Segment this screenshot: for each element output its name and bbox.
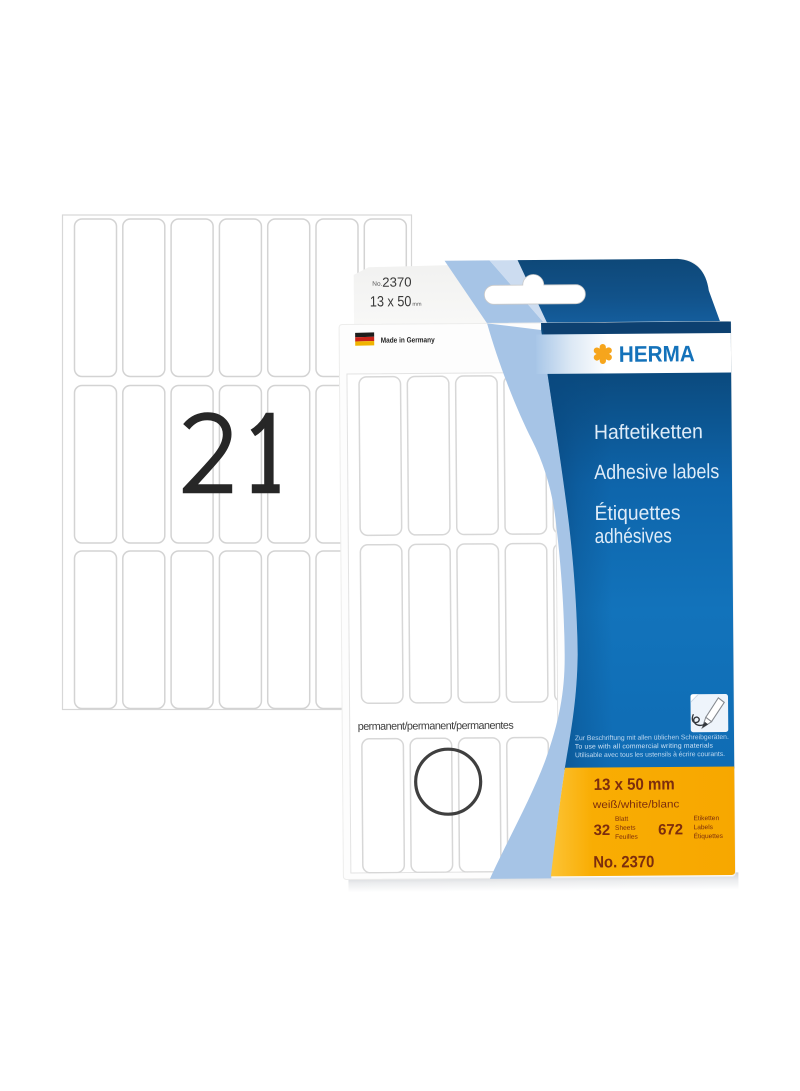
svg-text:Etiketten: Etiketten [693, 815, 719, 822]
svg-text:Labels: Labels [694, 824, 714, 831]
svg-text:Adhesive labels: Adhesive labels [594, 460, 719, 484]
svg-text:2370: 2370 [382, 274, 411, 289]
svg-text:weiß/white/blanc: weiß/white/blanc [592, 798, 680, 811]
svg-text:13 x 50 mm: 13 x 50 mm [594, 775, 675, 794]
svg-text:Étiquettes: Étiquettes [594, 501, 680, 525]
svg-text:32: 32 [593, 822, 610, 839]
svg-text:To use with all commercial wri: To use with all commercial writing mater… [575, 743, 714, 751]
svg-text:adhésives: adhésives [595, 524, 672, 548]
svg-text:Zur Beschriftung mit allen übl: Zur Beschriftung mit allen üblichen Schr… [575, 734, 729, 742]
svg-text:No.: No. [372, 281, 382, 288]
svg-text:No. 2370: No. 2370 [593, 853, 654, 871]
svg-text:Made in Germany: Made in Germany [381, 335, 436, 344]
svg-text:Utilisable avec tous les usten: Utilisable avec tous les ustensils à écr… [575, 751, 725, 759]
svg-text:Haftetiketten: Haftetiketten [594, 420, 703, 444]
svg-text:13 x 50: 13 x 50 [370, 294, 412, 310]
svg-text:672: 672 [658, 821, 683, 838]
svg-text:Sheets: Sheets [615, 825, 636, 832]
svg-text:HERMA: HERMA [619, 341, 695, 367]
svg-text:permanent/permanent/permanente: permanent/permanent/permanentes [358, 720, 515, 733]
svg-text:mm: mm [412, 302, 422, 308]
svg-text:Étiquettes: Étiquettes [694, 831, 724, 840]
svg-text:Blatt: Blatt [615, 816, 628, 823]
svg-text:Feuilles: Feuilles [615, 834, 638, 841]
